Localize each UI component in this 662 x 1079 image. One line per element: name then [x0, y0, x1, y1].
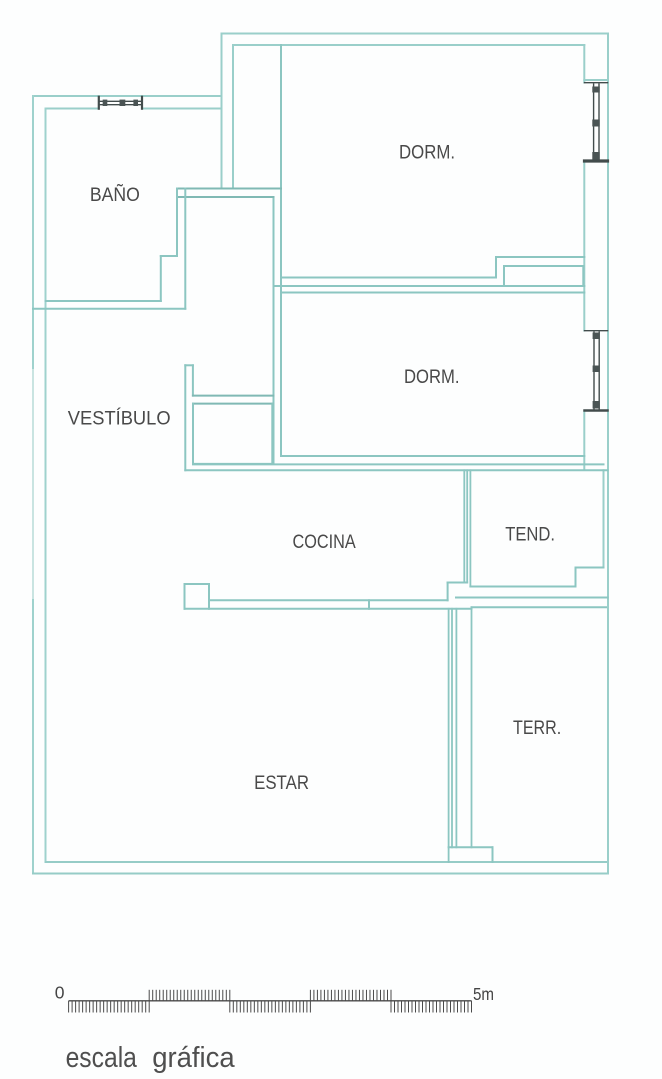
svg-text:5m: 5m [473, 984, 494, 1004]
svg-text:COCINA: COCINA [293, 531, 356, 553]
svg-text:VESTÍBULO: VESTÍBULO [68, 407, 171, 430]
svg-text:DORM.: DORM. [399, 142, 455, 164]
svg-text:ESTAR: ESTAR [254, 772, 309, 794]
svg-text:BAÑO: BAÑO [90, 182, 140, 206]
svg-text:0: 0 [55, 983, 65, 1003]
svg-text:TEND.: TEND. [505, 524, 555, 546]
svg-text:TERR.: TERR. [513, 717, 561, 739]
svg-text:DORM.: DORM. [404, 366, 460, 388]
